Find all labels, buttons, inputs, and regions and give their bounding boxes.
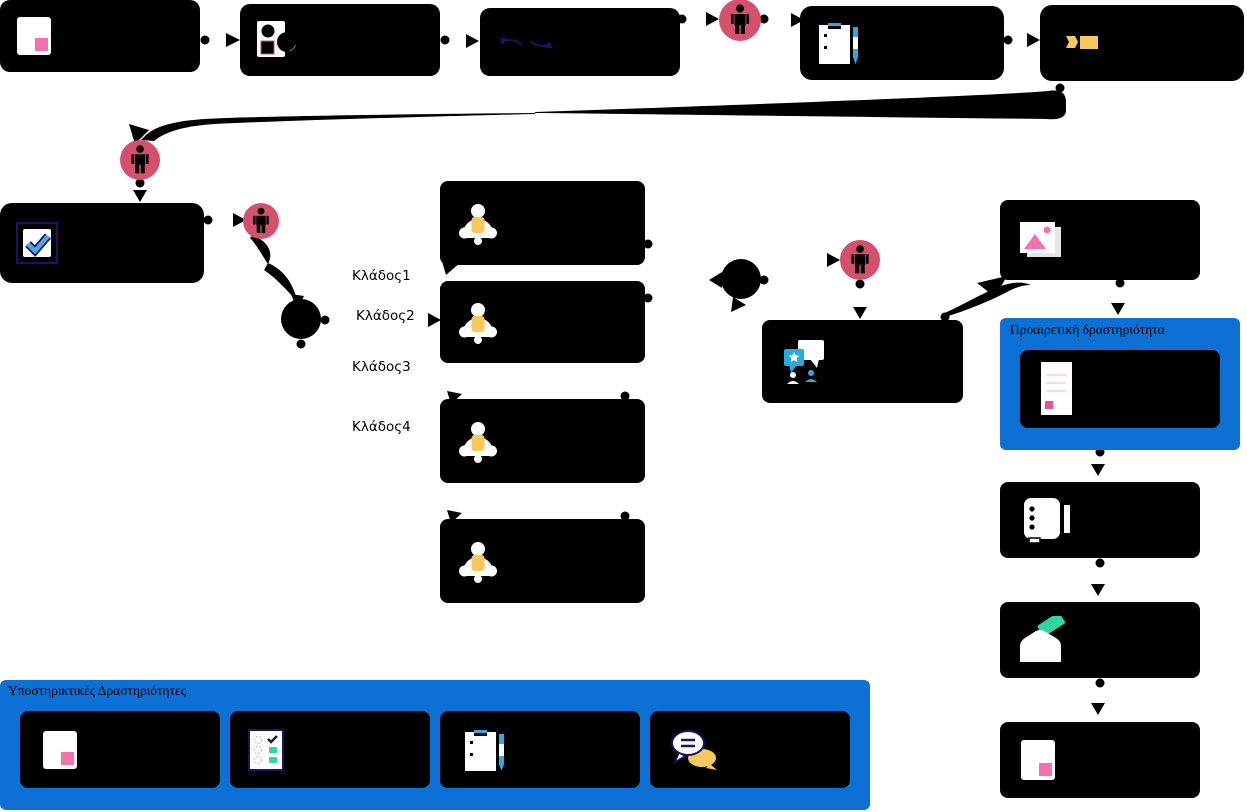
- optional-activity-title: Προαιρετική δραστηριότητα: [1010, 322, 1165, 338]
- flow-step-records: [1000, 482, 1200, 558]
- flow-step-top-1: [0, 0, 200, 72]
- flow-step-top-5: [1040, 5, 1244, 81]
- flow-step-top-2: [240, 4, 440, 76]
- chat-bubbles-icon: [668, 728, 722, 772]
- bell-icon: [456, 299, 500, 345]
- support-step-1: [20, 711, 220, 788]
- person-icon-branch: [243, 203, 279, 239]
- optional-activity-panel: Προαιρετική δραστηριότητα: [1000, 318, 1240, 450]
- person-icon-start: [120, 140, 160, 180]
- clipboard-pencil-icon: [462, 726, 506, 774]
- photo-icon: [1018, 220, 1062, 260]
- checklist-icon: [248, 729, 284, 771]
- connector-arrowheads: [133, 12, 1125, 715]
- support-step-3: [440, 711, 640, 788]
- flow-step-optional: [1020, 350, 1220, 428]
- swoosh-branch-connector: [250, 235, 304, 310]
- flow-step-branch-1: [440, 181, 645, 265]
- branch-label-2: Κλάδος2: [356, 308, 415, 324]
- support-activities-panel: Υποστηρικτικές Δραστηριότητες: [0, 680, 870, 810]
- flow-step-submission: [1000, 602, 1200, 678]
- gateway-split-circle: [281, 299, 321, 339]
- branch-label-1: Κλάδος1: [352, 268, 411, 284]
- flow-step-final: [1000, 722, 1200, 798]
- shapes-icon: [256, 20, 298, 60]
- branch-label-4: Κλάδος4: [352, 419, 411, 435]
- swoosh-return-connector: [942, 276, 1031, 317]
- support-activities-title: Υποστηρικτικές Δραστηριότητες: [8, 683, 186, 699]
- flow-step-top-4: [800, 6, 1004, 80]
- flowchart-canvas: Κλάδος1 Κλάδος2 Κλάδος3 Κλάδος4: [0, 0, 1247, 812]
- pink-note-icon: [1020, 739, 1056, 781]
- document-icon: [1040, 361, 1074, 417]
- pink-note-icon: [16, 16, 52, 56]
- flow-step-branch-3: [440, 399, 645, 483]
- flow-step-start: [0, 203, 204, 283]
- bell-icon: [456, 538, 500, 584]
- flow-step-branch-4: [440, 519, 645, 603]
- flow-step-branch-2: [440, 281, 645, 363]
- flow-step-discussion: [762, 320, 963, 403]
- swoosh-top-connector: [129, 84, 1066, 145]
- sync-arrows-icon: [496, 31, 556, 53]
- person-icon-top: [719, 0, 761, 41]
- chat-people-icon: [778, 336, 830, 388]
- clipboard-pencil-icon: [816, 19, 860, 67]
- tag-icon: [1066, 36, 1100, 50]
- bell-icon: [456, 418, 500, 464]
- person-icon-review: [840, 240, 880, 280]
- support-step-2: [230, 711, 430, 788]
- support-step-4: [650, 711, 850, 788]
- flow-step-media: [1000, 200, 1200, 280]
- flow-step-top-3: [480, 8, 680, 76]
- gateway-merge-circle: [721, 259, 761, 299]
- branch-label-3: Κλάδος3: [352, 359, 411, 375]
- envelope-card-icon: [1016, 616, 1066, 664]
- pink-note-icon: [42, 730, 78, 770]
- bell-icon: [456, 200, 500, 246]
- check-stamp-icon: [16, 222, 58, 264]
- notebook-icon: [1022, 496, 1072, 544]
